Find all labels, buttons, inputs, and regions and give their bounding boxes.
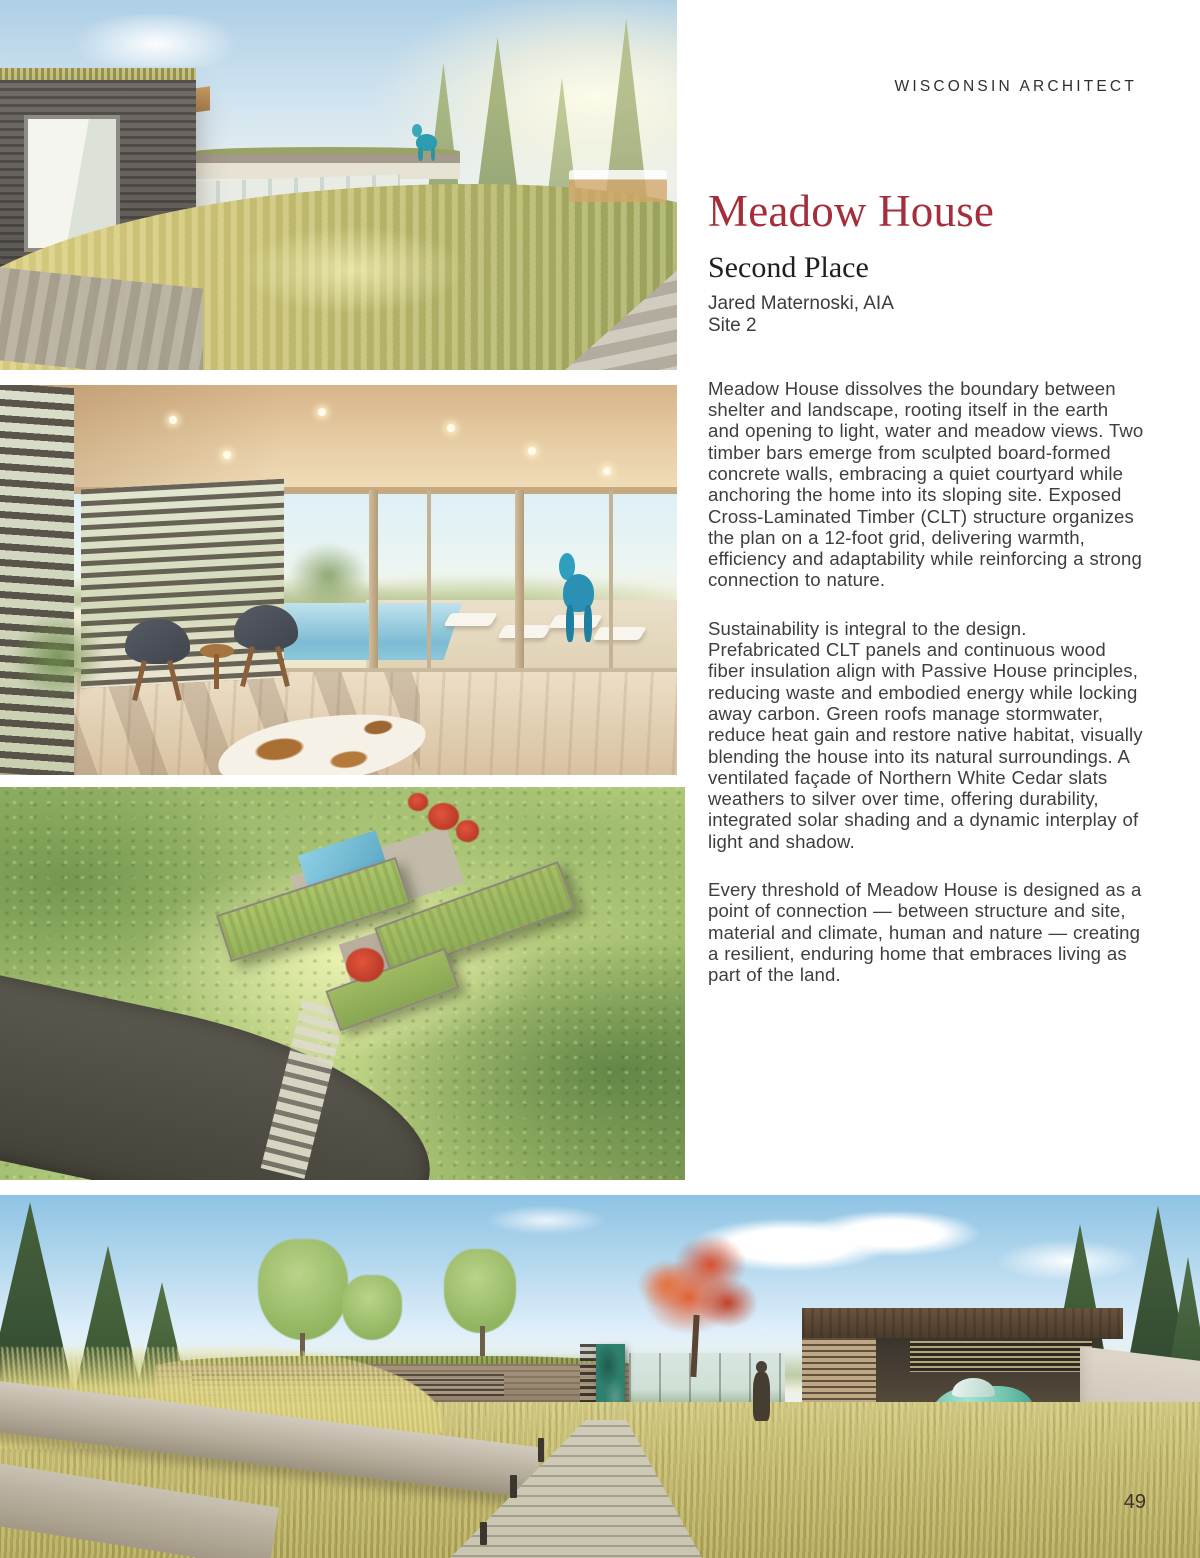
aspen-tree — [258, 1239, 348, 1341]
aspen-tree — [342, 1275, 402, 1340]
chair-leg — [275, 646, 289, 687]
chair-shell — [234, 605, 298, 650]
door-frame-mullion — [609, 490, 613, 689]
person-silhouette — [751, 1361, 771, 1421]
door-frame-mullion — [427, 490, 431, 689]
sunlight-patch — [190, 207, 515, 333]
page-number: 49 — [1124, 1491, 1146, 1514]
cloud — [41, 15, 271, 67]
outdoor-dining-set — [569, 170, 667, 201]
glass-wall-post — [369, 490, 378, 689]
chair-leg — [240, 646, 254, 687]
cloud — [456, 1202, 636, 1235]
sculpture-leg — [431, 147, 436, 161]
paragraph: Every threshold of Meadow House is desig… — [708, 879, 1144, 985]
path-bollard-light — [510, 1475, 517, 1499]
red-maple-tree — [408, 793, 429, 811]
award-subtitle: Second Place — [708, 252, 1144, 284]
recessed-light — [603, 467, 611, 475]
sculpture-leg — [584, 605, 591, 643]
photo-exterior-meadow-roof — [0, 0, 677, 370]
paragraph: Sustainability is integral to the design… — [708, 618, 1144, 852]
article-column: Meadow House Second Place Jared Maternos… — [708, 188, 1144, 1012]
lounge-chair — [234, 605, 298, 687]
photo-exterior-entry-path: 49 — [0, 1195, 1200, 1558]
recessed-light — [447, 424, 455, 432]
red-maple-tree — [346, 948, 384, 981]
photo-aerial-site — [0, 787, 685, 1180]
site-label: Site 2 — [708, 315, 1144, 337]
chaise-lounge — [443, 613, 498, 626]
article-body: Meadow House dissolves the boundary betw… — [708, 378, 1144, 986]
chair-leg — [132, 660, 146, 701]
architect-byline: Jared Maternoski, AIA — [708, 293, 1144, 315]
sculpture-leg — [566, 605, 573, 643]
paragraph: Meadow House dissolves the boundary betw… — [708, 378, 1144, 591]
path-bollard-light — [538, 1438, 545, 1462]
balloon-dog-sculpture — [410, 124, 444, 161]
carport-clerestory-slats — [910, 1341, 1092, 1372]
chaise-lounge — [497, 625, 552, 638]
greenery — [0, 596, 129, 721]
magazine-masthead: WISCONSIN ARCHITECT — [894, 78, 1137, 96]
lounge-chair — [125, 619, 189, 701]
car-windows — [952, 1378, 995, 1397]
side-table-leg — [214, 654, 219, 689]
photo-interior-pool-view — [0, 385, 677, 775]
balloon-dog-sculpture — [555, 553, 602, 643]
aspen-tree — [444, 1249, 516, 1332]
person-body — [753, 1372, 769, 1421]
path-bollard-light — [480, 1522, 487, 1546]
carport-roof-fascia — [802, 1308, 1124, 1339]
magazine-page: WISCONSIN ARCHITECT — [0, 0, 1200, 1558]
article-title: Meadow House — [708, 188, 1144, 235]
sculpture-leg — [418, 147, 423, 161]
cloud — [960, 1235, 1176, 1282]
chair-leg — [167, 660, 181, 701]
chair-shell — [125, 619, 189, 664]
glass-wall-post — [515, 490, 524, 689]
red-maple-tree — [428, 803, 459, 831]
